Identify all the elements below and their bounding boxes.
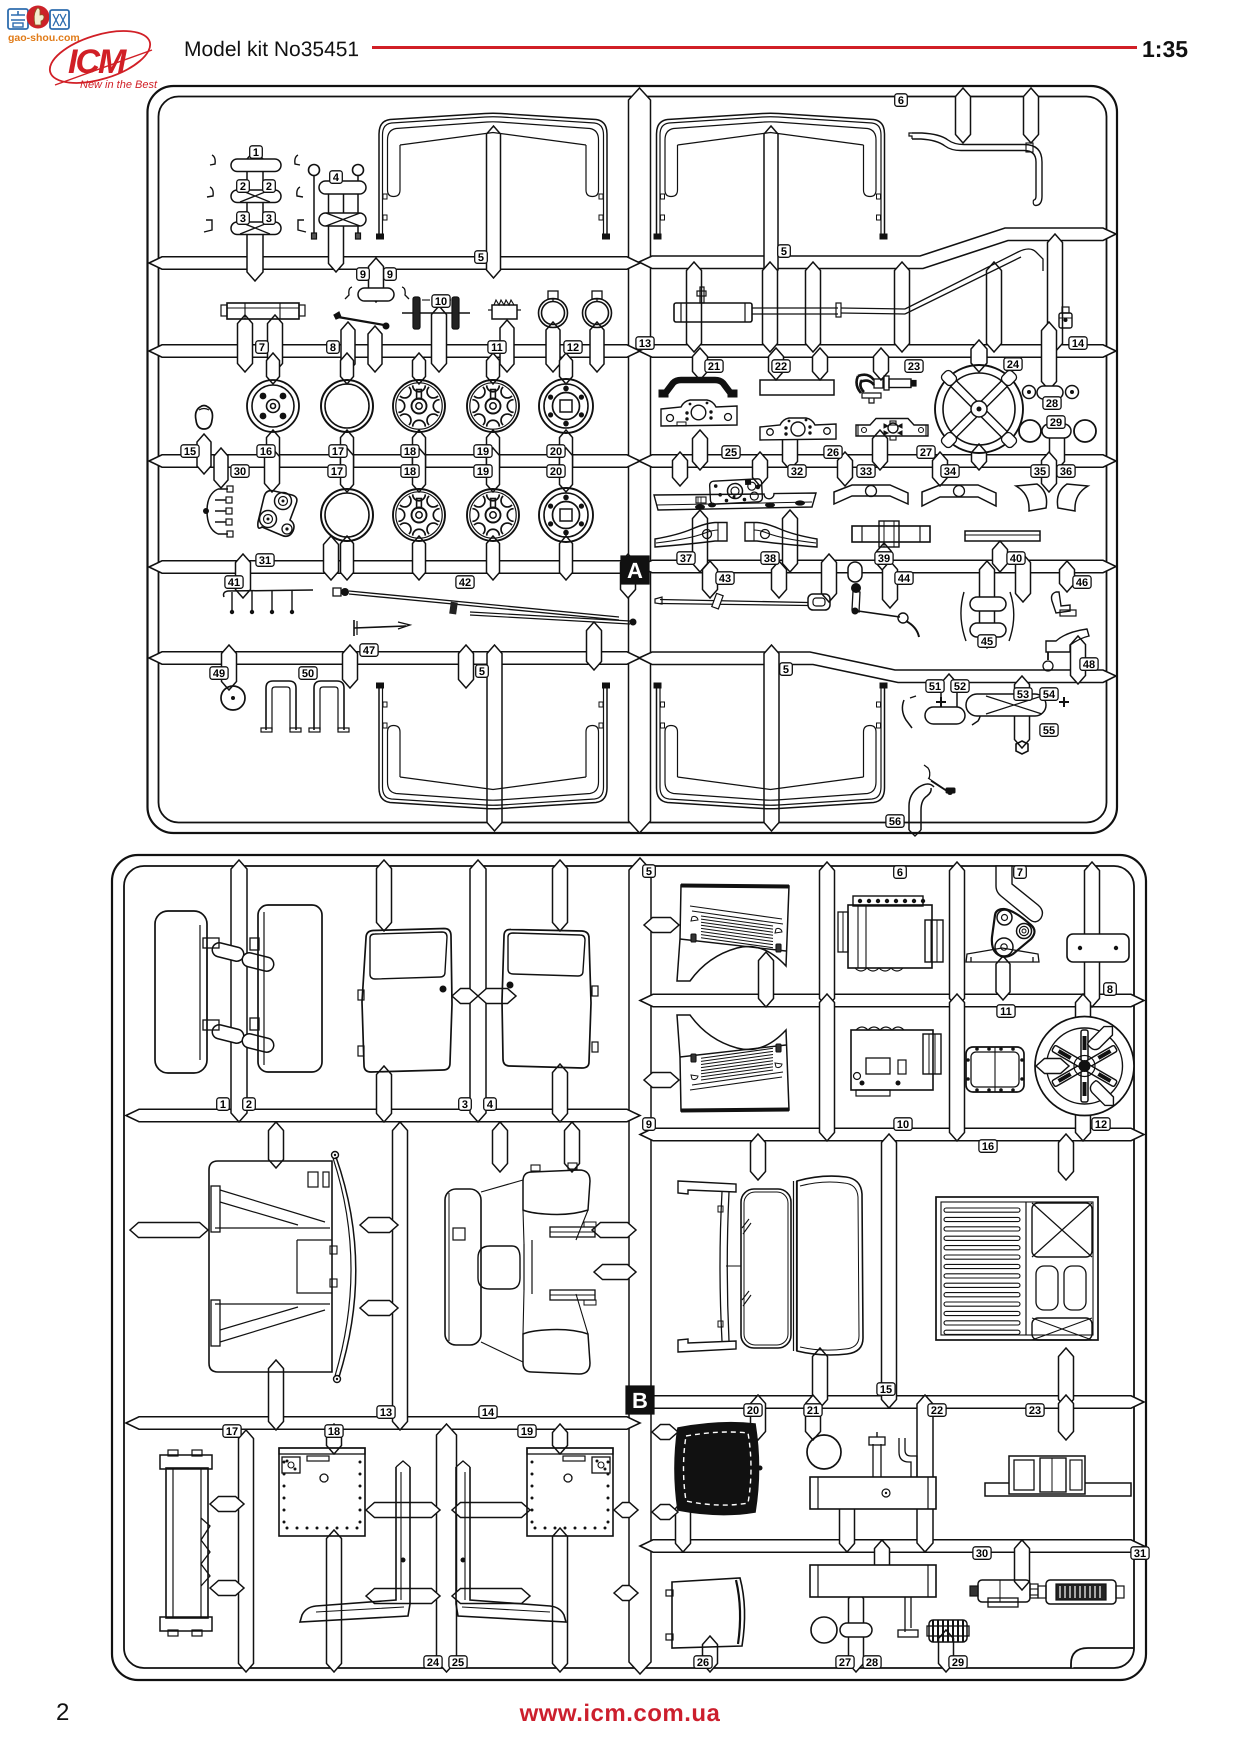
svg-text:4: 4 — [333, 172, 340, 184]
svg-text:22: 22 — [775, 361, 787, 373]
svg-text:30: 30 — [976, 1548, 988, 1560]
svg-text:21: 21 — [708, 361, 720, 373]
svg-text:4: 4 — [487, 1099, 494, 1111]
svg-text:36: 36 — [1060, 466, 1072, 478]
svg-text:New in the Best: New in the Best — [80, 79, 158, 91]
svg-text:56: 56 — [889, 816, 901, 828]
svg-text:26: 26 — [827, 447, 839, 459]
svg-text:12: 12 — [567, 342, 579, 354]
svg-text:B: B — [632, 1388, 648, 1413]
svg-text:20: 20 — [747, 1405, 759, 1417]
svg-text:9: 9 — [646, 1119, 652, 1131]
svg-text:9: 9 — [387, 269, 393, 281]
svg-text:3: 3 — [240, 213, 246, 225]
svg-text:2: 2 — [266, 181, 272, 193]
svg-text:27: 27 — [839, 1657, 851, 1669]
svg-text:52: 52 — [954, 681, 966, 693]
svg-text:22: 22 — [931, 1405, 943, 1417]
svg-text:6: 6 — [898, 95, 904, 107]
svg-text:13: 13 — [380, 1407, 392, 1419]
svg-text:29: 29 — [1050, 417, 1062, 429]
svg-text:18: 18 — [328, 1426, 340, 1438]
svg-text:15: 15 — [184, 446, 196, 458]
svg-text:14: 14 — [482, 1407, 495, 1419]
svg-text:47: 47 — [363, 645, 375, 657]
svg-text:2: 2 — [246, 1099, 252, 1111]
svg-text:26: 26 — [697, 1657, 709, 1669]
svg-text:31: 31 — [259, 555, 271, 567]
svg-text:9: 9 — [360, 269, 366, 281]
svg-text:11: 11 — [491, 342, 503, 354]
svg-text:A: A — [627, 558, 643, 583]
svg-text:1: 1 — [253, 147, 259, 159]
svg-text:48: 48 — [1083, 659, 1095, 671]
svg-text:7: 7 — [259, 342, 265, 354]
svg-text:46: 46 — [1076, 577, 1088, 589]
svg-text:5: 5 — [783, 664, 789, 676]
svg-text:21: 21 — [807, 1405, 819, 1417]
svg-text:5: 5 — [478, 252, 484, 264]
svg-text:28: 28 — [866, 1657, 878, 1669]
svg-text:40: 40 — [1010, 553, 1022, 565]
svg-text:5: 5 — [646, 866, 652, 878]
svg-text:38: 38 — [764, 553, 776, 565]
svg-text:35: 35 — [1034, 466, 1046, 478]
svg-text:23: 23 — [1029, 1405, 1041, 1417]
svg-text:55: 55 — [1043, 725, 1055, 737]
svg-text:20: 20 — [550, 446, 562, 458]
svg-text:27: 27 — [920, 447, 932, 459]
svg-text:17: 17 — [332, 446, 344, 458]
svg-text:16: 16 — [260, 446, 272, 458]
svg-text:29: 29 — [952, 1657, 964, 1669]
svg-text:Model kit No35451: Model kit No35451 — [184, 38, 359, 61]
svg-text:32: 32 — [791, 466, 803, 478]
svg-text:7: 7 — [1017, 867, 1023, 879]
svg-text:41: 41 — [228, 577, 240, 589]
svg-text:23: 23 — [908, 361, 920, 373]
svg-text:45: 45 — [981, 636, 993, 648]
svg-text:8: 8 — [330, 342, 336, 354]
svg-text:18: 18 — [404, 446, 416, 458]
svg-text:2: 2 — [56, 1699, 69, 1726]
svg-text:10: 10 — [897, 1119, 909, 1131]
svg-text:17: 17 — [226, 1426, 238, 1438]
svg-text:19: 19 — [477, 446, 489, 458]
svg-text:25: 25 — [452, 1657, 464, 1669]
svg-text:5: 5 — [781, 246, 787, 258]
svg-text:13: 13 — [639, 338, 651, 350]
svg-text:3: 3 — [266, 213, 272, 225]
svg-text:54: 54 — [1043, 689, 1056, 701]
svg-text:53: 53 — [1017, 689, 1029, 701]
svg-text:25: 25 — [725, 447, 737, 459]
svg-text:6: 6 — [897, 867, 903, 879]
svg-text:33: 33 — [860, 466, 872, 478]
svg-text:14: 14 — [1072, 338, 1085, 350]
svg-text:24: 24 — [427, 1657, 440, 1669]
svg-text:49: 49 — [213, 668, 225, 680]
svg-text:51: 51 — [929, 681, 941, 693]
svg-text:24: 24 — [1007, 359, 1020, 371]
svg-text:8: 8 — [1107, 984, 1113, 996]
svg-text:2: 2 — [240, 181, 246, 193]
svg-text:50: 50 — [302, 668, 314, 680]
svg-text:43: 43 — [719, 573, 731, 585]
svg-text:30: 30 — [234, 466, 246, 478]
svg-text:15: 15 — [880, 1384, 892, 1396]
svg-text:44: 44 — [898, 573, 911, 585]
svg-text:31: 31 — [1134, 1548, 1146, 1560]
svg-text:34: 34 — [944, 466, 957, 478]
svg-text:19: 19 — [477, 466, 489, 478]
svg-text:www.icm.com.ua: www.icm.com.ua — [519, 1700, 721, 1727]
svg-text:ICM: ICM — [68, 43, 127, 81]
svg-text:28: 28 — [1046, 398, 1058, 410]
svg-text:20: 20 — [550, 466, 562, 478]
svg-text:39: 39 — [878, 553, 890, 565]
svg-text:10: 10 — [435, 296, 447, 308]
svg-text:3: 3 — [462, 1099, 468, 1111]
svg-text:12: 12 — [1095, 1119, 1107, 1131]
svg-text:1:35: 1:35 — [1142, 36, 1188, 62]
svg-text:5: 5 — [479, 666, 485, 678]
svg-text:1: 1 — [220, 1099, 226, 1111]
svg-text:11: 11 — [1000, 1006, 1012, 1018]
svg-text:37: 37 — [680, 553, 692, 565]
svg-text:42: 42 — [459, 577, 471, 589]
svg-text:19: 19 — [521, 1426, 533, 1438]
svg-text:18: 18 — [404, 466, 416, 478]
svg-text:17: 17 — [331, 466, 343, 478]
svg-text:16: 16 — [982, 1141, 994, 1153]
